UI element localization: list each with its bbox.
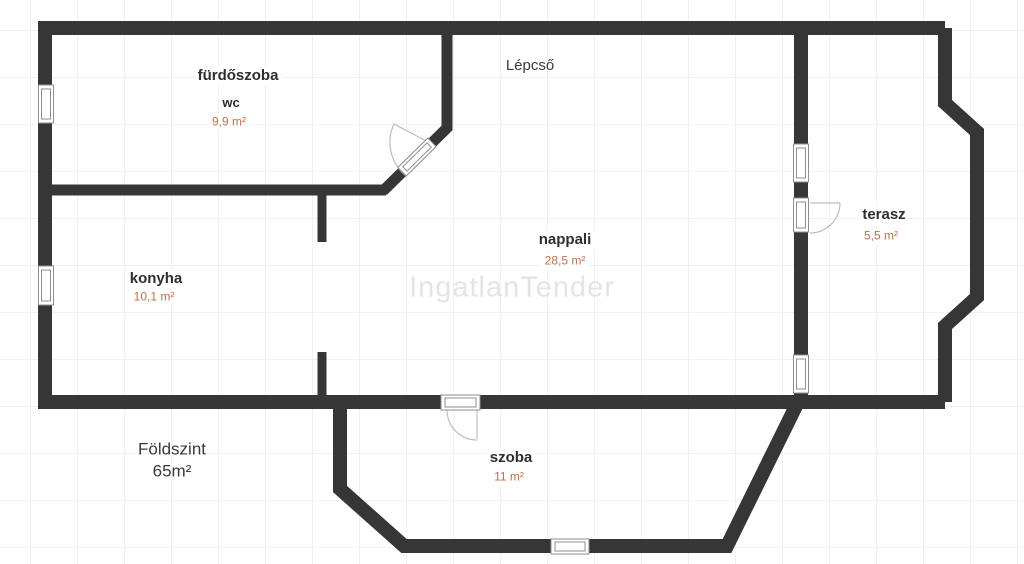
- floor-label: Földszint: [135, 440, 209, 461]
- floor-plan-page: IngatlanTender: [0, 0, 1024, 564]
- room-label-konyha: konyha: [127, 270, 186, 289]
- window-symbol: [39, 266, 54, 305]
- room-label-furdoszoba: fürdőszoba: [195, 67, 282, 86]
- door-symbol: [794, 198, 809, 232]
- area-label-szoba: 11 m²: [491, 469, 527, 484]
- window-symbol: [794, 355, 809, 393]
- room-label-lepcso: Lépcső: [503, 57, 557, 76]
- outer-wall: [45, 28, 945, 402]
- window-symbol: [551, 539, 589, 554]
- area-label-terasz: 5,5 m²: [861, 228, 901, 243]
- room-sublabel-wc: wc: [219, 95, 242, 111]
- outer-wall-right: [945, 28, 977, 402]
- terrace-door-swing-arc: [810, 203, 840, 233]
- door-swings-group: [390, 124, 840, 440]
- area-label-konyha: 10,1 m²: [131, 289, 178, 304]
- openings-group: [39, 85, 809, 554]
- area-label-nappali: 28,5 m²: [542, 253, 589, 268]
- room-label-terasz: terasz: [859, 206, 908, 225]
- door-symbol: [441, 395, 480, 410]
- room-door-swing-arc: [447, 410, 477, 440]
- window-symbol: [794, 144, 809, 182]
- window-symbol: [39, 85, 54, 123]
- room-label-nappali: nappali: [536, 231, 595, 250]
- area-label-furdoszoba: 9,9 m²: [209, 114, 249, 129]
- floor-area-label: 65m²: [150, 462, 195, 483]
- outer-wall-room-bay: [340, 396, 798, 546]
- room-label-szoba: szoba: [487, 449, 536, 468]
